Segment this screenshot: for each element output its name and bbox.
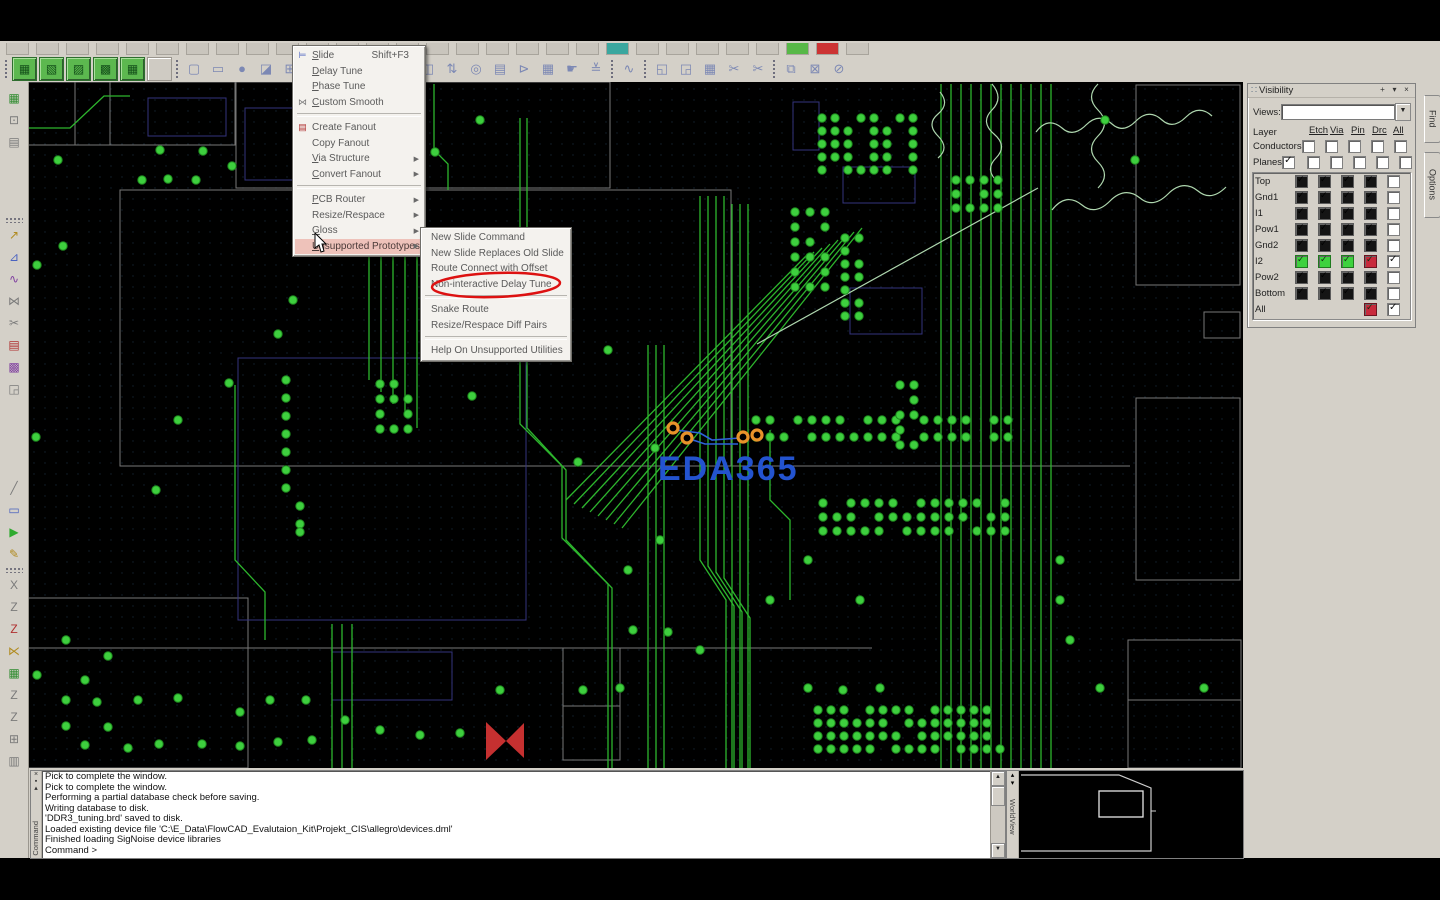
color-grid-icon[interactable]: ▦ [536, 58, 560, 80]
check-mark: ✓ [1320, 222, 1328, 233]
layer-gnd1-checkbox[interactable]: ✓ [1364, 191, 1377, 204]
console-pin-icon[interactable]: ▪ [31, 778, 41, 785]
toolbar-clipped-icon[interactable] [816, 43, 839, 55]
toolbar-clipped-icon[interactable] [426, 43, 449, 55]
bottom-black-bar [0, 858, 1440, 900]
layer-row-i1: I1✓✓✓✓ [1253, 205, 1410, 221]
highlight-icon[interactable]: ⇅ [440, 58, 464, 80]
layer-row-bottom: Bottom✓✓✓✓ [1253, 285, 1410, 301]
check-mark: ✓ [1320, 270, 1328, 281]
layer-name: Gnd1 [1255, 192, 1295, 203]
toolbar-clipped-icon[interactable] [216, 43, 239, 55]
layer-i2-checkbox[interactable]: ✓ [1318, 255, 1331, 268]
conductors-checkbox[interactable] [1302, 140, 1315, 153]
pin-icon[interactable]: + [1377, 85, 1388, 96]
column-header-pin[interactable]: Pin [1351, 125, 1372, 138]
add-connect-icon[interactable]: ↗ [4, 225, 24, 244]
toolbar-clipped-icon[interactable] [666, 43, 689, 55]
layer-list: Top✓✓✓✓Gnd1✓✓✓✓I1✓✓✓✓Pow1✓✓✓✓Gnd2✓✓✓✓I2✓… [1252, 172, 1411, 320]
toolbar-row-clipped [0, 41, 938, 55]
layer-top-checkbox[interactable]: ✓ [1364, 175, 1377, 188]
check-mark: ✓ [1320, 174, 1328, 185]
grid-green-icon[interactable]: ▦ [4, 663, 24, 682]
layer-pow1-checkbox[interactable]: ✓ [1364, 223, 1377, 236]
layer-top-checkbox[interactable]: ✓ [1318, 175, 1331, 188]
layer-name: Gnd2 [1255, 240, 1295, 251]
layer-name: Bottom [1255, 288, 1295, 299]
toolbar-clipped-icon[interactable] [516, 43, 539, 55]
check-mark: ✓ [1366, 190, 1374, 201]
console-line: Performing a partial database check befo… [45, 793, 987, 804]
toolbar-clipped-icon[interactable] [126, 43, 149, 55]
console-output[interactable]: Pick to complete the window.Pick to comp… [42, 771, 990, 858]
submenu-arrow-icon: ▶ [414, 224, 419, 240]
layer-pow2-checkbox[interactable]: ✓ [1364, 271, 1377, 284]
snip-icon[interactable]: ✂ [746, 58, 770, 80]
check-mark: ✓ [1297, 190, 1305, 201]
layer-pow2-checkbox[interactable]: ✓ [1341, 271, 1354, 284]
open-icon[interactable]: ▢ [182, 58, 206, 80]
help-icon[interactable]: ⊘ [827, 58, 851, 80]
layer-gnd1-checkbox[interactable]: ✓ [1341, 191, 1354, 204]
column-header-all[interactable]: All [1393, 125, 1414, 138]
menu-shortcut: Shift+F3 [371, 48, 409, 64]
run-icon[interactable]: ▶ [4, 522, 24, 541]
mouse-cursor [314, 233, 328, 253]
toolbar-clipped-icon[interactable] [6, 43, 29, 55]
submenu-arrow-icon: ▶ [414, 167, 419, 183]
check-mark: ✓ [1320, 238, 1328, 249]
scroll-up-icon[interactable]: ▲ [991, 771, 1005, 786]
waveform-icon[interactable]: ∿ [617, 58, 641, 80]
scroll-down-icon[interactable]: ▼ [991, 843, 1005, 858]
menu-item-copy-fanout[interactable]: Copy Fanout [295, 136, 423, 152]
clipboard-icon[interactable]: ◲ [674, 58, 698, 80]
toolbar-clipped-icon[interactable] [606, 43, 629, 55]
toolbar-clipped-icon[interactable] [246, 43, 269, 55]
layer-gnd2-checkbox[interactable]: ✓ [1295, 239, 1308, 252]
layer-gnd2-checkbox[interactable]: ✓ [1364, 239, 1377, 252]
console-line: Finished loading SigNoise device librari… [45, 835, 987, 846]
layer-bottom-checkbox[interactable]: ✓ [1295, 287, 1308, 300]
check-mark: ✓ [1366, 254, 1374, 265]
close-icon[interactable]: × [1401, 85, 1412, 96]
layer-pow2-checkbox[interactable]: ✓ [1318, 271, 1331, 284]
toolbar-clipped-icon[interactable] [96, 43, 119, 55]
toolbar-grip[interactable] [643, 59, 648, 79]
green-toolbar-button-3[interactable]: ▨ [66, 57, 91, 81]
submenu-item-resize-respace-diff-pairs[interactable]: Resize/Respace Diff Pairs [423, 318, 569, 334]
layer-i1-checkbox[interactable]: ✓ [1318, 207, 1331, 220]
layer-pow1-checkbox[interactable]: ✓ [1318, 223, 1331, 236]
layer-row-all: All✓✓ [1253, 301, 1410, 317]
conductors-label: Conductors [1253, 141, 1302, 152]
toolbar-clipped-icon[interactable] [576, 43, 599, 55]
layer-gnd2-checkbox[interactable]: ✓ [1318, 239, 1331, 252]
check-mark: ✓ [1343, 286, 1351, 297]
toolbar-row-main: ▦▧▨▩▦▢▭●◪⊞↻⊣⊨◧◫⇅◎▤⊳▦☛≚∿◱◲▦✂✂⧉⊠⊘ [0, 55, 942, 82]
worldview-map[interactable] [1019, 771, 1243, 858]
layer-bottom-checkbox[interactable]: ✓ [1341, 287, 1354, 300]
views-dropdown-arrow-icon[interactable]: ▼ [1395, 103, 1411, 121]
toolbar-clipped-icon[interactable] [726, 43, 749, 55]
check-mark: ✓ [1366, 238, 1374, 249]
drag-handle-icon[interactable]: ∷ [1251, 85, 1256, 96]
check-mark: ✓ [1366, 286, 1374, 297]
layer-bottom-checkbox[interactable]: ✓ [1364, 287, 1377, 300]
layer-i1-checkbox[interactable]: ✓ [1341, 207, 1354, 220]
measure-icon[interactable]: ⊞ [4, 729, 24, 748]
menu-item-custom-smooth[interactable]: Custom Smooth⋈ [295, 95, 423, 111]
menu-item-icon: ▤ [297, 122, 308, 133]
console-vertical-label: Command [31, 821, 40, 856]
toolbar-clipped-icon[interactable] [786, 43, 809, 55]
check-mark: ✓ [1343, 222, 1351, 233]
line-tool-icon[interactable]: ╱ [4, 478, 24, 497]
route-x-icon[interactable]: X [4, 575, 24, 594]
layer-name: Top [1255, 176, 1295, 187]
green-toolbar-button-4[interactable]: ▩ [93, 57, 118, 81]
check-mark: ✓ [1284, 155, 1292, 166]
submenu-arrow-icon: ▶ [414, 239, 419, 255]
layer-pow2-checkbox[interactable]: ✓ [1295, 271, 1308, 284]
layer-top-checkbox[interactable]: ✓ [1341, 175, 1354, 188]
menu-item-via-structure[interactable]: Via Structure▶ [295, 151, 423, 167]
menu-item-convert-fanout[interactable]: Convert Fanout▶ [295, 167, 423, 183]
paste-icon[interactable]: ◱ [650, 58, 674, 80]
top-black-bar [0, 0, 1440, 41]
layer-row-gnd2: Gnd2✓✓✓✓ [1253, 237, 1410, 253]
check-mark: ✓ [1297, 206, 1305, 217]
toolbar-clipped-icon[interactable] [696, 43, 719, 55]
menu-item-delay-tune[interactable]: Delay Tune [295, 64, 423, 80]
console-dock-icon[interactable]: ▴ [31, 785, 41, 792]
planes-label: Planes [1253, 157, 1282, 168]
planes-col-checkbox[interactable] [1399, 156, 1412, 169]
left-toolbar-separator [5, 567, 23, 573]
conductors-row: Conductors [1248, 138, 1415, 154]
toolbar-clipped-icon[interactable] [636, 43, 659, 55]
delay-tune-icon[interactable]: ∿ [4, 269, 24, 288]
toolbar-grip[interactable] [175, 59, 180, 79]
menu-item-resize-respace[interactable]: Resize/Respace▶ [295, 208, 423, 224]
route-z4-icon[interactable]: Z [4, 707, 24, 726]
layer-label: Layer [1248, 127, 1309, 138]
check-mark: ✓ [1343, 174, 1351, 185]
layer-name: I1 [1255, 208, 1295, 219]
layer-i2-checkbox[interactable]: ✓ [1295, 255, 1308, 268]
film-record-icon[interactable]: ▤ [4, 132, 24, 151]
layer-i1-checkbox[interactable]: ✓ [1295, 207, 1308, 220]
submenu-arrow-icon: ▶ [414, 193, 419, 209]
visibility-title-bar[interactable]: ∷ Visibility + ▾ × [1248, 84, 1415, 98]
layer-gnd2-checkbox[interactable]: ✓ [1341, 239, 1354, 252]
table-icon[interactable]: ▥ [4, 751, 24, 770]
menu-item-pcb-router[interactable]: PCB Router▶ [295, 192, 423, 208]
check-mark: ✓ [1366, 302, 1374, 313]
worldview-vertical-label: WorldView [1008, 799, 1017, 835]
snapshot-icon[interactable]: ◎ [464, 58, 488, 80]
conductors-checkbox[interactable] [1325, 140, 1338, 153]
menu-separator [425, 336, 567, 340]
console-side-strip: × ▪ ▴ Command [31, 771, 42, 858]
toolbar-clipped-icon[interactable] [36, 43, 59, 55]
route-mix-icon[interactable]: ⋉ [4, 641, 24, 660]
layer-top-all-checkbox[interactable] [1387, 175, 1400, 188]
check-mark: ✓ [1297, 238, 1305, 249]
layer-pow1-checkbox[interactable]: ✓ [1295, 223, 1308, 236]
visibility-panel: ∷ Visibility + ▾ × Views: ▼ Layer EtchVi… [1247, 83, 1416, 328]
console-line: Writing database to disk. [45, 804, 987, 815]
toolbar-grip[interactable] [772, 59, 777, 79]
red-circle-annotation [428, 268, 568, 302]
layer-gnd2-all-checkbox[interactable] [1387, 239, 1400, 252]
toolbar-grip[interactable] [4, 59, 9, 79]
layer-pow2-all-checkbox[interactable] [1387, 271, 1400, 284]
submenu-item-help-on-unsupported-utilities[interactable]: Help On Unsupported Utilities [423, 343, 569, 359]
route-z3-icon[interactable]: Z [4, 685, 24, 704]
check-mark: ✓ [1366, 222, 1374, 233]
check-mark: ✓ [1343, 206, 1351, 217]
submenu-item-new-slide-replaces-old-slide[interactable]: New Slide Replaces Old Slide [423, 246, 569, 262]
column-header-drc[interactable]: Drc [1372, 125, 1393, 138]
views-label: Views: [1253, 107, 1281, 118]
planes-col-checkbox[interactable] [1376, 156, 1389, 169]
layer-top-checkbox[interactable]: ✓ [1295, 175, 1308, 188]
worldview-panel: ▴ ▾ WorldView [1006, 770, 1244, 859]
green-toolbar-button-1[interactable]: ▦ [12, 57, 37, 81]
planes-col-checkbox[interactable] [1353, 156, 1366, 169]
layer-gnd1-checkbox[interactable]: ✓ [1318, 191, 1331, 204]
check-mark: ✓ [1320, 254, 1328, 265]
layer-i1-checkbox[interactable]: ✓ [1364, 207, 1377, 220]
rect-tool-icon[interactable]: ▭ [4, 500, 24, 519]
planes-row: Planes✓ [1248, 154, 1415, 170]
layer-bottom-checkbox[interactable]: ✓ [1318, 287, 1331, 300]
toolbar-clipped-icon[interactable] [66, 43, 89, 55]
copy-tool-icon[interactable]: ◲ [4, 379, 24, 398]
layer-pow1-checkbox[interactable]: ✓ [1341, 223, 1354, 236]
layer-name: I2 [1255, 256, 1295, 267]
select-doc-icon[interactable]: ◪ [254, 58, 278, 80]
slide-icon[interactable]: ✂ [4, 313, 24, 332]
new-window-icon[interactable]: ⧉ [779, 58, 803, 80]
views-select[interactable] [1281, 104, 1394, 120]
toolbar-clipped-icon[interactable] [486, 43, 509, 55]
mail-icon[interactable]: ⊠ [803, 58, 827, 80]
submenu-arrow-icon: ▶ [414, 208, 419, 224]
check-mark: ✓ [1320, 286, 1328, 297]
route-z2-icon[interactable]: Z [4, 619, 24, 638]
planes-col-checkbox[interactable] [1307, 156, 1320, 169]
probe-icon[interactable]: ✎ [4, 544, 24, 563]
board-green-icon[interactable]: ▦ [4, 88, 24, 107]
layer-i2-all-checkbox[interactable]: ✓ [1387, 255, 1400, 268]
toolbar-clipped-icon[interactable] [846, 43, 869, 55]
layer-name: Pow2 [1255, 272, 1295, 283]
layer-row-gnd1: Gnd1✓✓✓✓ [1253, 189, 1410, 205]
submenu-arrow-icon: ▶ [414, 152, 419, 168]
toolbar-clipped-icon[interactable] [156, 43, 179, 55]
layer-pow1-all-checkbox[interactable] [1387, 223, 1400, 236]
planes-checkbox[interactable]: ✓ [1282, 156, 1295, 169]
command-console: × ▪ ▴ Command Pick to complete the windo… [30, 770, 1006, 859]
console-close-icon[interactable]: × [31, 771, 41, 778]
stackup-icon[interactable]: ≚ [584, 58, 608, 80]
color-priority-icon[interactable]: ▩ [4, 357, 24, 376]
application-window: ▦▧▨▩▦▢▭●◪⊞↻⊣⊨◧◫⇅◎▤⊳▦☛≚∿◱◲▦✂✂⧉⊠⊘ EDA365 ▦… [0, 0, 1440, 900]
toolbar-clipped-icon[interactable] [756, 43, 779, 55]
menu-item-phase-tune[interactable]: Phase Tune [295, 79, 423, 95]
layer-name: Pow1 [1255, 224, 1295, 235]
console-line: Pick to complete the window. [45, 772, 987, 783]
flag-icon[interactable]: ⊳ [512, 58, 536, 80]
check-mark: ✓ [1320, 206, 1328, 217]
green-toolbar-button-2[interactable]: ▧ [39, 57, 64, 81]
toolbar-clipped-icon[interactable] [456, 43, 479, 55]
shape-rect-icon[interactable]: ▭ [206, 58, 230, 80]
check-mark: ✓ [1366, 270, 1374, 281]
viewport-rect[interactable] [1099, 791, 1143, 817]
check-mark: ✓ [1297, 286, 1305, 297]
column-header-via[interactable]: Via [1330, 125, 1351, 138]
check-mark: ✓ [1297, 222, 1305, 233]
submenu-item-snake-route[interactable]: Snake Route [423, 302, 569, 318]
toolbar-clipped-icon[interactable] [186, 43, 209, 55]
layer-row-i2: I2✓✓✓✓✓ [1253, 253, 1410, 269]
menu-item-icon: ⋈ [297, 97, 308, 108]
left-toolbar-separator [5, 217, 23, 223]
console-line: 'DDR3_tuning.brd' saved to disk. [45, 814, 987, 825]
layer-row-pow1: Pow1✓✓✓✓ [1253, 221, 1410, 237]
check-mark: ✓ [1343, 238, 1351, 249]
custom-smooth-icon[interactable]: ⋈ [4, 291, 24, 310]
check-mark: ✓ [1297, 254, 1305, 265]
visibility-title: Visibility [1259, 85, 1293, 96]
check-mark: ✓ [1297, 270, 1305, 281]
worldview-side-strip: ▴ ▾ WorldView [1007, 771, 1019, 858]
svg-text:EDA365: EDA365 [658, 450, 799, 488]
tab-find[interactable]: Find [1424, 95, 1440, 143]
calendar-icon[interactable]: ▦ [698, 58, 722, 80]
conductors-checkbox[interactable] [1394, 140, 1407, 153]
layer-bottom-all-checkbox[interactable] [1387, 287, 1400, 300]
hand-pick-icon[interactable]: ☛ [560, 58, 584, 80]
check-mark: ✓ [1297, 174, 1305, 185]
console-line: Command > [45, 846, 987, 857]
layer-row-top: Top✓✓✓✓ [1253, 173, 1410, 189]
check-mark: ✓ [1343, 270, 1351, 281]
layer-columns: EtchViaPinDrcAll [1309, 125, 1414, 138]
menu-item-icon: ⊨ [297, 50, 308, 61]
snip-orange-icon[interactable]: ✂ [722, 58, 746, 80]
layer-all-all-checkbox[interactable]: ✓ [1387, 303, 1400, 316]
menu-separator [297, 185, 421, 189]
layer-i2-checkbox[interactable]: ✓ [1364, 255, 1377, 268]
shape-circle-icon[interactable]: ● [230, 58, 254, 80]
layer-name: All [1255, 304, 1295, 315]
layer-all-checkbox[interactable]: ✓ [1364, 303, 1377, 316]
layer-i2-checkbox[interactable]: ✓ [1341, 255, 1354, 268]
column-header-etch[interactable]: Etch [1309, 125, 1330, 138]
check-mark: ✓ [1320, 190, 1328, 201]
route-z1-icon[interactable]: Z [4, 597, 24, 616]
worldview-down-icon[interactable]: ▾ [1007, 779, 1018, 787]
menu-item-create-fanout[interactable]: Create Fanout▤ [295, 120, 423, 136]
check-mark: ✓ [1343, 254, 1351, 265]
conductors-checkbox[interactable] [1371, 140, 1384, 153]
context-menu: Slide⊨Shift+F3Delay TunePhase TuneCustom… [292, 45, 426, 257]
tab-options[interactable]: Options [1424, 152, 1440, 218]
planes-col-checkbox[interactable] [1330, 156, 1343, 169]
toolbar-grip[interactable] [610, 59, 615, 79]
submenu-item-new-slide-command[interactable]: New Slide Command [423, 230, 569, 246]
check-mark: ✓ [1389, 254, 1397, 265]
xy-coordinate-icon[interactable]: ⊡ [4, 110, 24, 129]
conductors-checkbox[interactable] [1348, 140, 1361, 153]
console-scrollbar[interactable]: ▲ ▼ [990, 771, 1005, 858]
check-mark: ✓ [1389, 302, 1397, 313]
menu-item-slide[interactable]: Slide⊨Shift+F3 [295, 48, 423, 64]
check-mark: ✓ [1366, 174, 1374, 185]
pcb-canvas[interactable]: EDA365 [28, 82, 1243, 768]
layer-gnd1-checkbox[interactable]: ✓ [1295, 191, 1308, 204]
layer-i1-all-checkbox[interactable] [1387, 207, 1400, 220]
collapse-icon[interactable]: ▾ [1389, 85, 1400, 96]
worldview-up-icon[interactable]: ▴ [1007, 771, 1018, 779]
layer-row-pow2: Pow2✓✓✓✓ [1253, 269, 1410, 285]
check-mark: ✓ [1366, 206, 1374, 217]
scroll-thumb[interactable] [991, 786, 1005, 806]
left-toolbar: ▦⊡▤↗⊿∿⋈✂▤▩◲╱▭▶✎XZZ⋉▦ZZ⊞▥ [0, 82, 29, 858]
toolbar-clipped-icon[interactable] [546, 43, 569, 55]
green-toolbar-button-5[interactable]: ▦ [120, 57, 145, 81]
create-fanout-icon[interactable]: ▤ [4, 335, 24, 354]
route-edit-icon[interactable]: ⊿ [4, 247, 24, 266]
check-mark: ✓ [1343, 190, 1351, 201]
menu-separator [297, 113, 421, 117]
layer-gnd1-all-checkbox[interactable] [1387, 191, 1400, 204]
blank-toolbar-button[interactable] [147, 57, 172, 81]
copy-stack-icon[interactable]: ▤ [488, 58, 512, 80]
